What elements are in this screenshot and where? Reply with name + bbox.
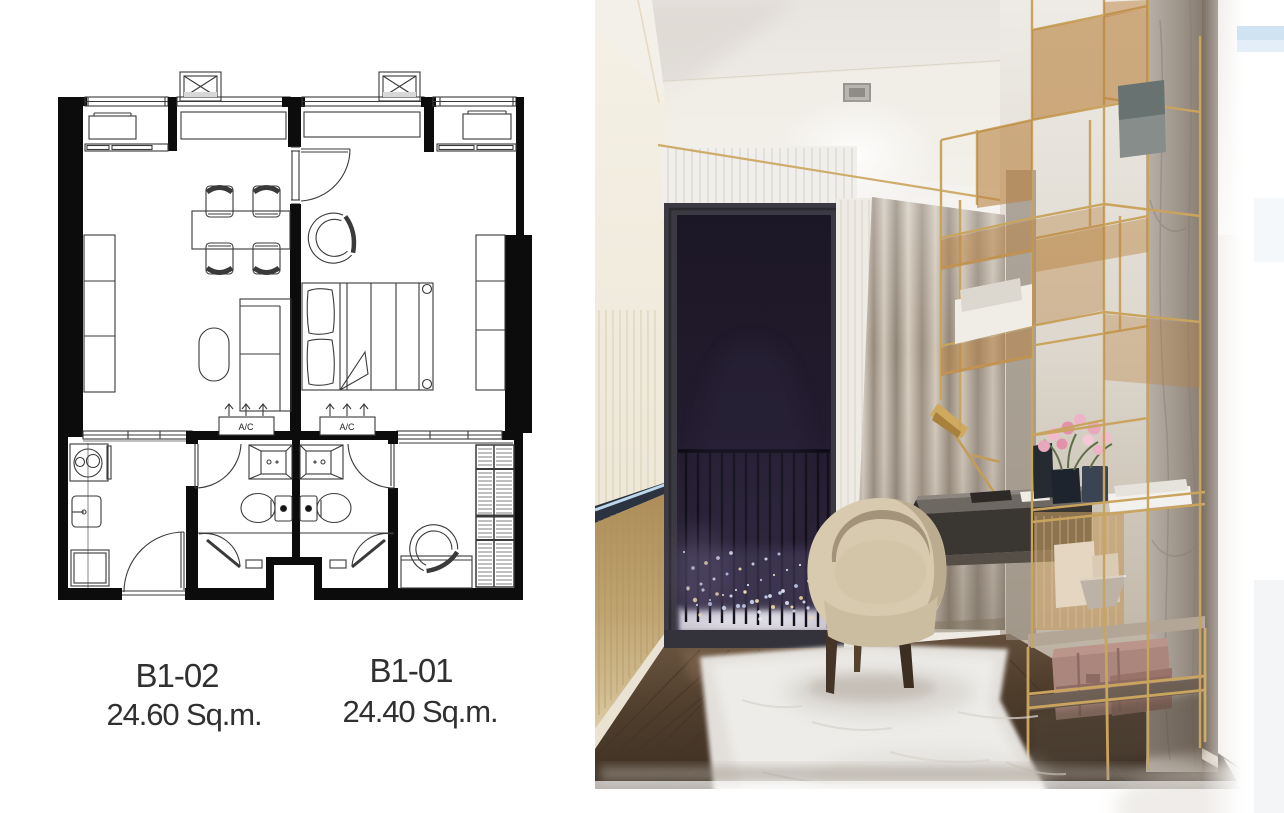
svg-text:24.60 Sq.m.: 24.60 Sq.m. [106,697,261,732]
svg-text:B1-01: B1-01 [369,652,452,689]
svg-text:A/C: A/C [339,422,355,432]
svg-text:B1-02: B1-02 [135,657,218,694]
svg-text:24.40 Sq.m.: 24.40 Sq.m. [342,694,497,729]
svg-text:A/C: A/C [238,422,254,432]
